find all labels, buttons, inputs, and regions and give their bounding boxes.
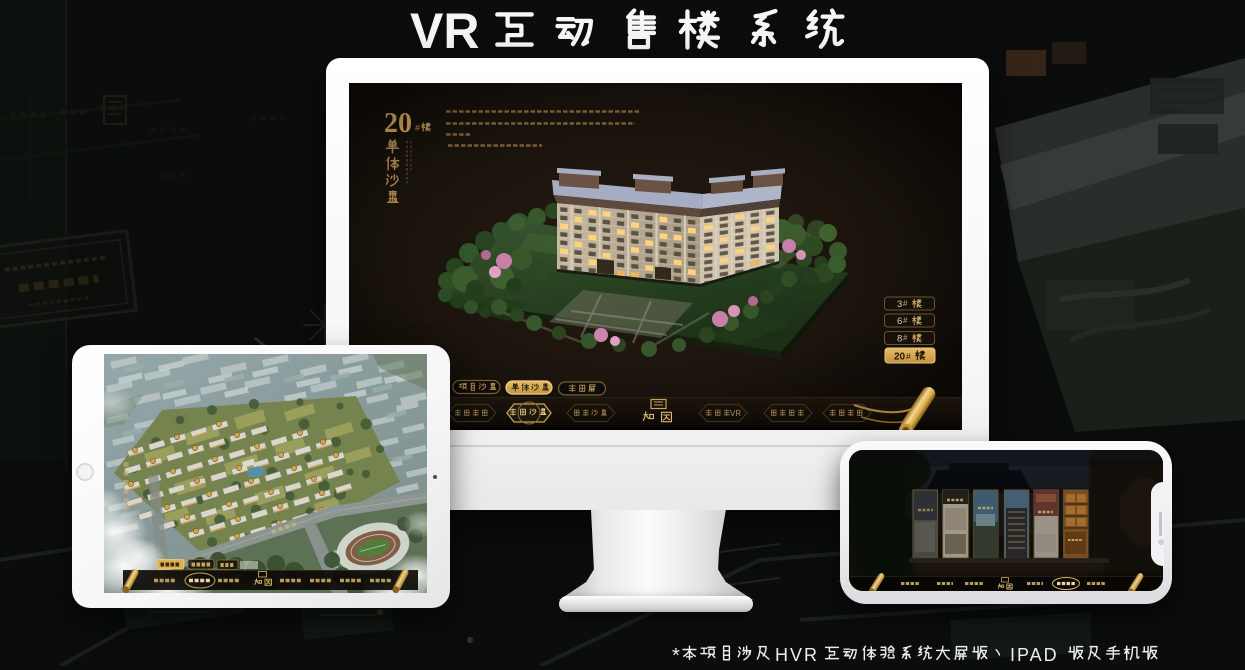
svg-text:3: 3: [897, 299, 902, 310]
svg-text:HVR: HVR: [775, 645, 819, 665]
svg-text:*: *: [672, 645, 680, 667]
svg-text:20: 20: [894, 352, 906, 363]
svg-text:IPAD: IPAD: [1010, 645, 1059, 665]
svg-text:#: #: [903, 299, 908, 308]
svg-text:8: 8: [897, 334, 902, 345]
svg-text:#: #: [903, 316, 908, 325]
svg-text:VR: VR: [730, 409, 741, 418]
svg-text:VR: VR: [410, 3, 479, 58]
svg-text:#: #: [906, 351, 911, 361]
svg-text:#: #: [903, 334, 908, 343]
svg-text:6: 6: [897, 316, 902, 327]
